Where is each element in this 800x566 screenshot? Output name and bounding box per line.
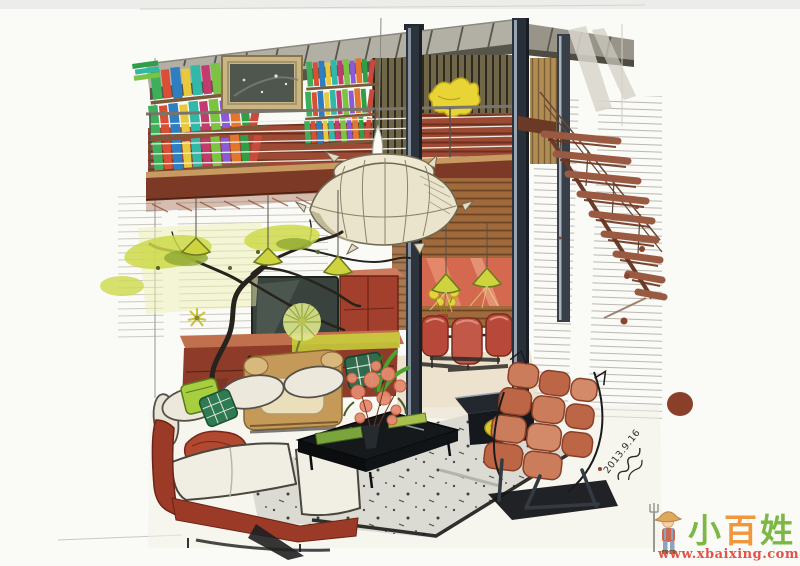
watermark-brand-char: 小	[688, 511, 721, 550]
interior-sketch-canvas: 2013.9.16 小 百 姓 www.xbaixing.com	[0, 0, 800, 566]
watermark-url: www.xbaixing.com	[657, 547, 799, 562]
stacked-books	[132, 60, 160, 80]
steel-column	[557, 34, 570, 322]
scanned-marker-rendering: 2013.9.16 小 百 姓 www.xbaixing.com	[0, 0, 800, 566]
large-ink-splatter	[667, 392, 693, 416]
framed-picture	[222, 56, 302, 110]
watermark-brand-char: 姓	[760, 511, 793, 550]
watermark-brand-char: 百	[724, 511, 757, 550]
